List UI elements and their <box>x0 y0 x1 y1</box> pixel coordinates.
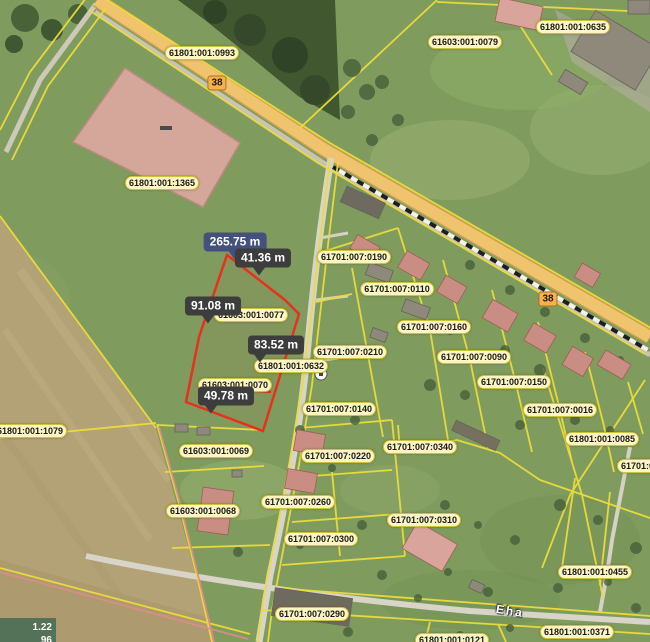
parcel-label-61801-001-1079[interactable]: 61801:001:1079 <box>0 424 67 438</box>
map-labels-layer: 61801:001:099361801:001:136561603:001:00… <box>0 0 650 642</box>
measurement-segment-tooltip: 49.78 m <box>198 387 254 406</box>
parcel-label-61603-001-0068[interactable]: 61603:001:0068 <box>166 504 240 518</box>
parcel-label-61701-007-0340[interactable]: 61701:007:0340 <box>383 440 457 454</box>
parcel-label-61801-001-0635[interactable]: 61801:001:0635 <box>536 20 610 34</box>
parcel-label-61801-001-0371[interactable]: 61801:001:0371 <box>540 625 614 639</box>
parcel-label-61801-001-0455[interactable]: 61801:001:0455 <box>558 565 632 579</box>
measurement-segment-tooltip: 83.52 m <box>248 336 304 355</box>
parcel-label-61801-001-1365[interactable]: 61801:001:1365 <box>125 176 199 190</box>
parcel-label-61701-007-0190[interactable]: 61701:007:0190 <box>317 250 391 264</box>
measurement-segment-tooltip: 41.36 m <box>235 249 291 268</box>
coordinate-line-1: 1.22 <box>0 621 52 634</box>
parcel-label-61603-001-0069[interactable]: 61603:001:0069 <box>179 444 253 458</box>
tooltip-pointer <box>205 406 217 420</box>
parcel-label-61701-007-0260[interactable]: 61701:007:0260 <box>261 495 335 509</box>
measurement-segment-tooltip: 91.08 m <box>185 297 241 316</box>
road-number-badge: 38 <box>538 292 557 307</box>
parcel-label-61701-00[interactable]: 61701:00 <box>617 459 650 473</box>
tooltip-pointer <box>202 316 214 330</box>
parcel-label-61701-007-0160[interactable]: 61701:007:0160 <box>397 320 471 334</box>
coordinate-readout: 1.22 96 <box>0 618 56 642</box>
parcel-label-61701-007-0220[interactable]: 61701:007:0220 <box>301 449 375 463</box>
parcel-label-61701-007-0090[interactable]: 61701:007:0090 <box>437 350 511 364</box>
parcel-label-61701-007-0016[interactable]: 61701:007:0016 <box>523 403 597 417</box>
coordinate-line-2: 96 <box>0 634 52 642</box>
parcel-label-61701-007-0110[interactable]: 61701:007:0110 <box>360 282 434 296</box>
parcel-label-61801-001-0121[interactable]: 61801:001:0121 <box>415 633 489 642</box>
parcel-label-61701-007-0310[interactable]: 61701:007:0310 <box>387 513 461 527</box>
tooltip-pointer <box>253 268 265 282</box>
parcel-label-61801-001-0085[interactable]: 61801:001:0085 <box>565 432 639 446</box>
map-canvas[interactable]: 61801:001:099361801:001:136561603:001:00… <box>0 0 650 642</box>
parcel-label-61801-001-0993[interactable]: 61801:001:0993 <box>165 46 239 60</box>
parcel-label-61701-007-0210[interactable]: 61701:007:0210 <box>313 345 387 359</box>
tooltip-pointer <box>254 355 266 369</box>
parcel-label-61701-007-0290[interactable]: 61701:007:0290 <box>275 607 349 621</box>
parcel-label-61603-001-0079[interactable]: 61603:001:0079 <box>428 35 502 49</box>
parcel-label-61701-007-0140[interactable]: 61701:007:0140 <box>302 402 376 416</box>
parcel-label-61701-007-0150[interactable]: 61701:007:0150 <box>477 375 551 389</box>
parcel-label-61701-007-0300[interactable]: 61701:007:0300 <box>284 532 358 546</box>
road-number-badge: 38 <box>207 76 226 91</box>
